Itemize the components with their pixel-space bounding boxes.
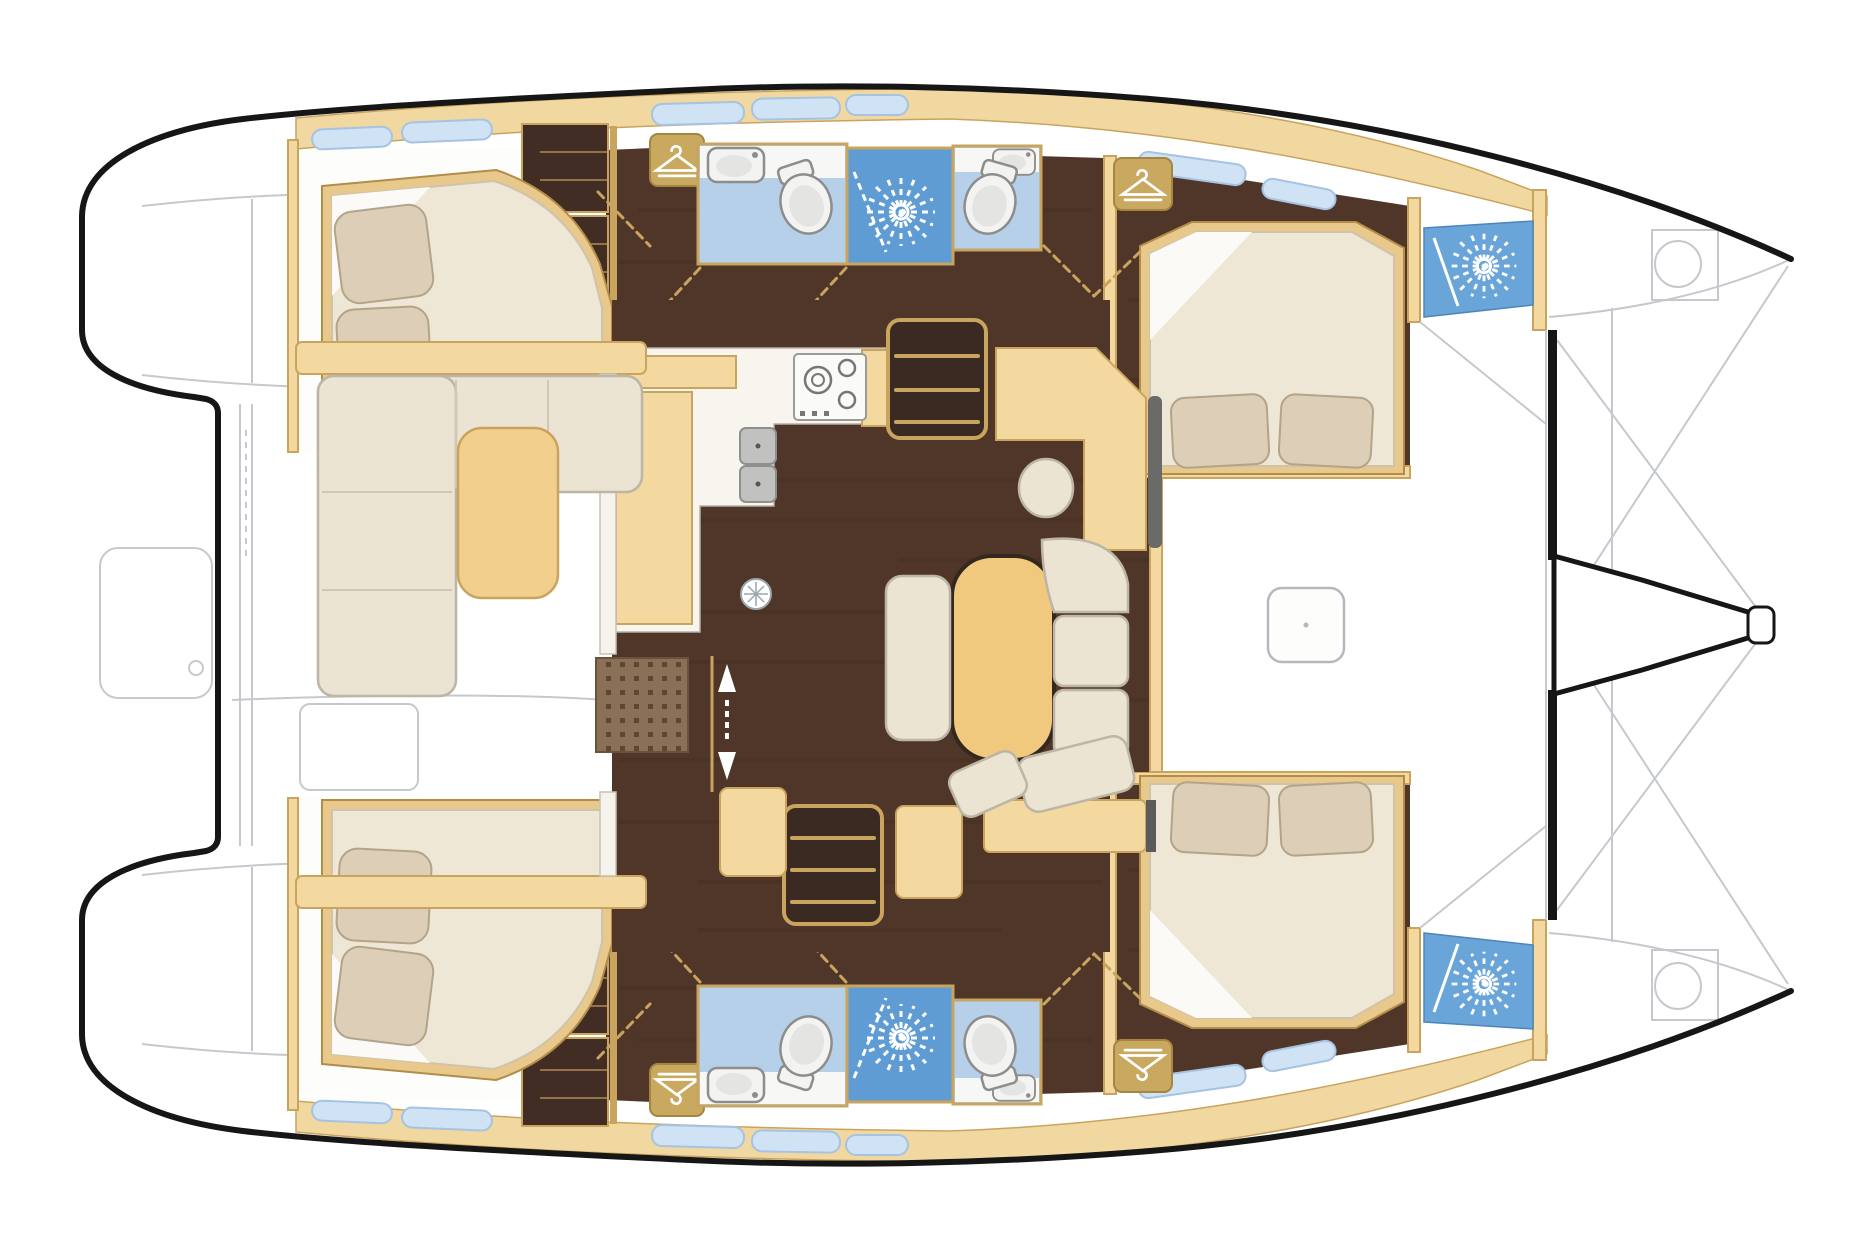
forepeak-shower bbox=[1424, 221, 1533, 317]
chart-seat-backrest bbox=[1148, 396, 1162, 548]
cockpit-mat bbox=[596, 658, 688, 752]
cockpit-coaming bbox=[296, 876, 646, 908]
cockpit-coaming bbox=[296, 342, 646, 374]
storage-cabinet bbox=[896, 806, 962, 898]
trampoline bbox=[1548, 230, 1791, 1020]
catamaran-floorplan-page bbox=[0, 0, 1849, 1250]
sink bbox=[708, 148, 764, 182]
forward-crossbeam bbox=[1548, 330, 1557, 560]
hull-window bbox=[752, 97, 840, 120]
salon-bench bbox=[886, 576, 950, 740]
bowsprit-fitting bbox=[1748, 607, 1774, 643]
helm-seat-sketch bbox=[300, 704, 418, 790]
catamaran-floorplan-svg bbox=[0, 0, 1849, 1250]
aft-bulkhead bbox=[288, 140, 298, 452]
forepeak-bulkhead bbox=[1408, 198, 1420, 322]
bed-pillow bbox=[333, 203, 436, 306]
companionway-stairs-port bbox=[888, 320, 986, 438]
sideboard-edge bbox=[1146, 800, 1156, 852]
bed-pillow bbox=[1278, 394, 1374, 469]
stove bbox=[794, 354, 866, 420]
salon-aft-wall bbox=[600, 792, 616, 876]
bow-locker-bulkhead bbox=[1533, 190, 1546, 330]
cockpit-table bbox=[458, 428, 558, 598]
toilet-compartment bbox=[953, 146, 1041, 250]
hanging-locker bbox=[1114, 158, 1172, 210]
storage-cabinet bbox=[720, 788, 786, 876]
sideboard bbox=[984, 800, 1146, 852]
hull-window bbox=[846, 95, 908, 115]
salon bbox=[608, 300, 1162, 952]
hull-window bbox=[402, 119, 493, 143]
head-compartment bbox=[698, 144, 847, 264]
bow-inner-edge bbox=[1549, 259, 1791, 317]
hull-window bbox=[652, 102, 745, 125]
galley-vent bbox=[741, 579, 771, 609]
bowsprit bbox=[1554, 556, 1770, 694]
companionway-stairs-starboard bbox=[784, 806, 882, 924]
bow-inner-edge bbox=[1549, 933, 1791, 991]
shower-compartment bbox=[847, 148, 953, 264]
forward-cabin-bed bbox=[1140, 222, 1404, 474]
hull-window bbox=[312, 126, 393, 149]
salon-table bbox=[952, 556, 1054, 760]
sofa-cushion bbox=[1054, 616, 1128, 686]
hanging-locker bbox=[650, 134, 704, 186]
chart-stool bbox=[1019, 459, 1073, 517]
cockpit-cushion bbox=[318, 376, 456, 696]
bed-pillow bbox=[1170, 394, 1270, 469]
forward-crossbeam bbox=[1548, 690, 1557, 920]
